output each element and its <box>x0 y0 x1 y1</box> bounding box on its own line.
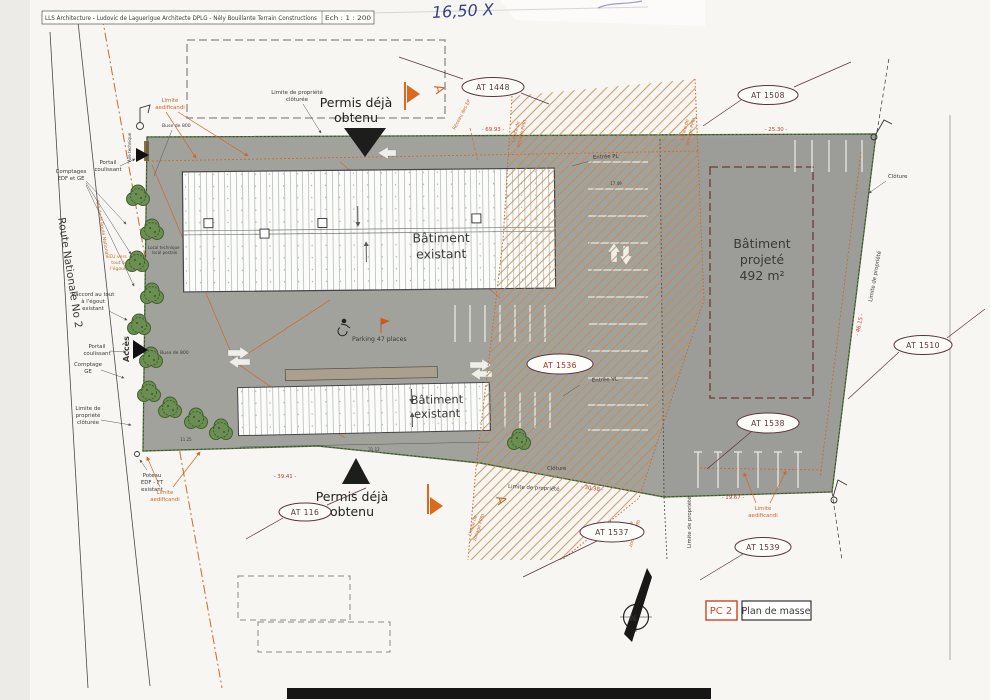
poteau-label: Poteau <box>143 473 162 479</box>
aedificandi-label-sw: Limite <box>157 490 174 496</box>
legend: PC 2 Plan de masse <box>706 601 811 620</box>
dim-19-67: - 19.67 - <box>722 495 745 501</box>
building2-label-1: Bâtiment <box>410 392 463 407</box>
projected-label-1: Bâtiment <box>733 236 790 251</box>
svg-text:aedificandi: aedificandi <box>155 105 185 111</box>
ref-at1539: AT 1539 <box>746 543 780 552</box>
scan-edge <box>0 0 30 700</box>
dim-31-12: 31.12 <box>368 447 380 452</box>
svg-text:à l'égout: à l'égout <box>81 298 105 305</box>
permit-triangle-up-icon <box>342 458 370 484</box>
reseau-ep-label: Réseau des EP <box>451 98 473 131</box>
north-arrow: N <box>620 568 652 642</box>
aedificandi-label-se: Limite <box>755 506 772 512</box>
limite-cloturee-top-label: Limite de propriété <box>271 89 323 96</box>
ref-at1538: AT 1538 <box>751 419 785 428</box>
prior-permit-zone <box>187 40 445 118</box>
svg-text:EDF - FT: EDF - FT <box>141 480 164 486</box>
paper-fold <box>500 0 705 26</box>
dim-17-49: 17.49 <box>610 181 622 186</box>
svg-text:aedificandi: aedificandi <box>748 513 778 519</box>
svg-text:l'égout: l'égout <box>110 265 126 272</box>
annex-zone-2 <box>258 622 390 652</box>
dim-39-41: - 39.41 - <box>274 474 297 480</box>
svg-text:local postale: local postale <box>152 250 178 255</box>
existing-building-2: Bâtiment existant <box>238 382 491 435</box>
raccord-label: Raccord au tout <box>72 292 115 298</box>
pc-label: PC 2 <box>710 606 733 617</box>
eu-egout-label: EU vers <box>109 254 127 260</box>
acces-label: Accès <box>121 336 131 362</box>
scale-text: Ech : 1 : 200 <box>325 15 371 22</box>
plan-canvas: Route Nationale No 2 Axe de la Route Nat… <box>0 0 990 700</box>
parking-label: Parking 47 places <box>352 336 407 343</box>
cloture-label-e: Clôture <box>888 173 908 180</box>
dim-46-15: - 46.15 - <box>855 313 866 337</box>
svg-text:clôturée: clôturée <box>286 96 309 103</box>
buse-label-2: Buse de 800 <box>160 350 189 356</box>
permit-top-2: obtenu <box>334 110 378 125</box>
building2-label-2: existant <box>414 406 461 421</box>
dim-11-25: 11.25 <box>180 437 192 442</box>
title-block: LLS Architecture - Ludovic de Laguerigue… <box>42 11 374 24</box>
permit-top-1: Permis déjà <box>320 95 393 110</box>
ref-at1537: AT 1537 <box>595 528 629 537</box>
ref-at116: AT 116 <box>291 508 320 517</box>
north-needle-icon <box>624 568 652 642</box>
svg-text:coulissant: coulissant <box>83 351 110 357</box>
title-text: LLS Architecture - Ludovic de Laguerigue… <box>45 14 317 22</box>
comptages-label: Comptages <box>56 169 87 175</box>
permit-bottom-2: obtenu <box>330 504 374 519</box>
cloture-label-s: Clôture <box>547 465 567 472</box>
plan-de-masse-label: Plan de masse <box>742 606 811 617</box>
building1-label-2: existant <box>416 246 466 262</box>
ref-at1448: AT 1448 <box>476 83 510 92</box>
bottom-scan-bar <box>287 688 711 699</box>
limite-propriete-s2: Limite de propriété <box>686 496 693 548</box>
section-triangle-icon <box>407 85 420 103</box>
site-plan-sheet: Route Nationale No 2 Axe de la Route Nat… <box>0 0 990 700</box>
dim-25-30: - 25.30 - <box>765 127 788 133</box>
ref-at1508: AT 1508 <box>751 91 785 100</box>
section-letter: A <box>430 83 447 96</box>
section-triangle-icon <box>430 497 443 515</box>
svg-text:EDF et GE: EDF et GE <box>57 176 85 182</box>
north-letter: N <box>630 614 637 624</box>
svg-text:GE: GE <box>84 369 92 375</box>
gate-mark <box>144 141 149 161</box>
section-marker-top: A <box>405 82 447 110</box>
aire-technique-label: Aire technique <box>127 132 132 162</box>
comptage-ge-label: Comptage <box>74 362 103 368</box>
annex-zone-1 <box>238 576 350 620</box>
svg-text:tout à: tout à <box>111 259 125 266</box>
road-name: Route Nationale No 2 <box>55 217 84 329</box>
limite-cloturee-label: Limite de <box>75 406 101 412</box>
svg-text:propriété: propriété <box>76 412 101 419</box>
projected-label-2: projeté <box>740 252 785 267</box>
svg-text:existant: existant <box>82 306 104 312</box>
portail-label: Portail <box>100 160 117 166</box>
portail-label-2: Portail <box>89 344 106 350</box>
ref-at1536: AT 1536 <box>543 361 577 370</box>
projected-label-3: 492 m² <box>739 268 784 283</box>
aedificandi-label-nw: Limite <box>162 98 179 104</box>
building1-label-1: Bâtiment <box>412 230 470 246</box>
entree-vl-label: Entrée VL <box>592 376 618 384</box>
buse-label-1: Buse de 800 <box>162 123 191 129</box>
permit-bottom-1: Permis déjà <box>316 489 389 504</box>
ref-at1510: AT 1510 <box>906 341 940 350</box>
svg-text:aedificandi: aedificandi <box>150 497 180 503</box>
svg-text:coulissant: coulissant <box>94 167 121 173</box>
dim-69-93: - 69.93 - <box>482 127 505 133</box>
limite-propriete-e: Limite de propriété <box>867 250 883 303</box>
handwritten-note: 16,50 X <box>431 0 495 22</box>
svg-text:clôturée: clôturée <box>77 419 100 426</box>
entree-pl-label: Entrée PL <box>593 153 619 161</box>
